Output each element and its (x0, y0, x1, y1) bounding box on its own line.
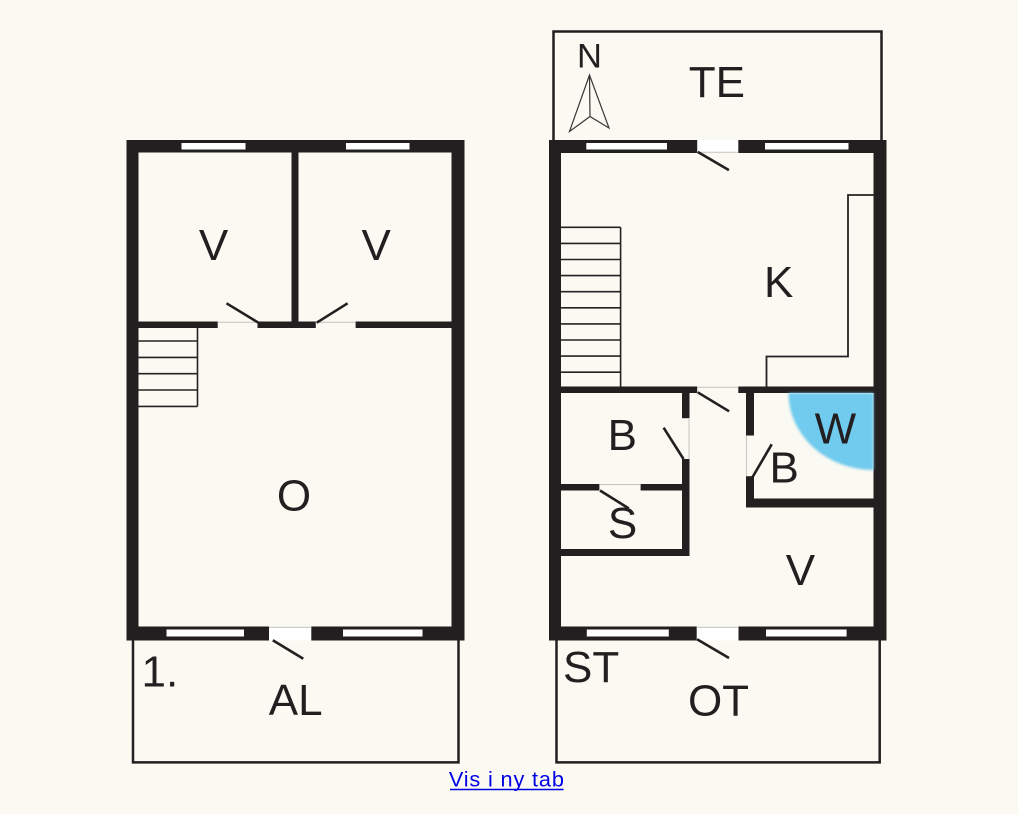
svg-text:V: V (362, 221, 392, 270)
svg-text:V: V (786, 546, 816, 595)
svg-text:B: B (608, 411, 637, 460)
svg-text:S: S (608, 499, 637, 548)
svg-text:O: O (277, 471, 311, 520)
svg-text:TE: TE (689, 58, 745, 107)
svg-text:B: B (770, 443, 799, 492)
svg-text:K: K (764, 258, 793, 307)
svg-text:W: W (815, 405, 857, 454)
svg-text:V: V (199, 221, 229, 270)
svg-text:1.: 1. (142, 647, 179, 696)
svg-text:OT: OT (688, 677, 749, 726)
svg-text:ST: ST (563, 643, 619, 692)
svg-text:N: N (577, 37, 602, 75)
svg-text:AL: AL (269, 676, 323, 725)
svg-text:Vis i ny tab: Vis i ny tab (449, 767, 565, 792)
